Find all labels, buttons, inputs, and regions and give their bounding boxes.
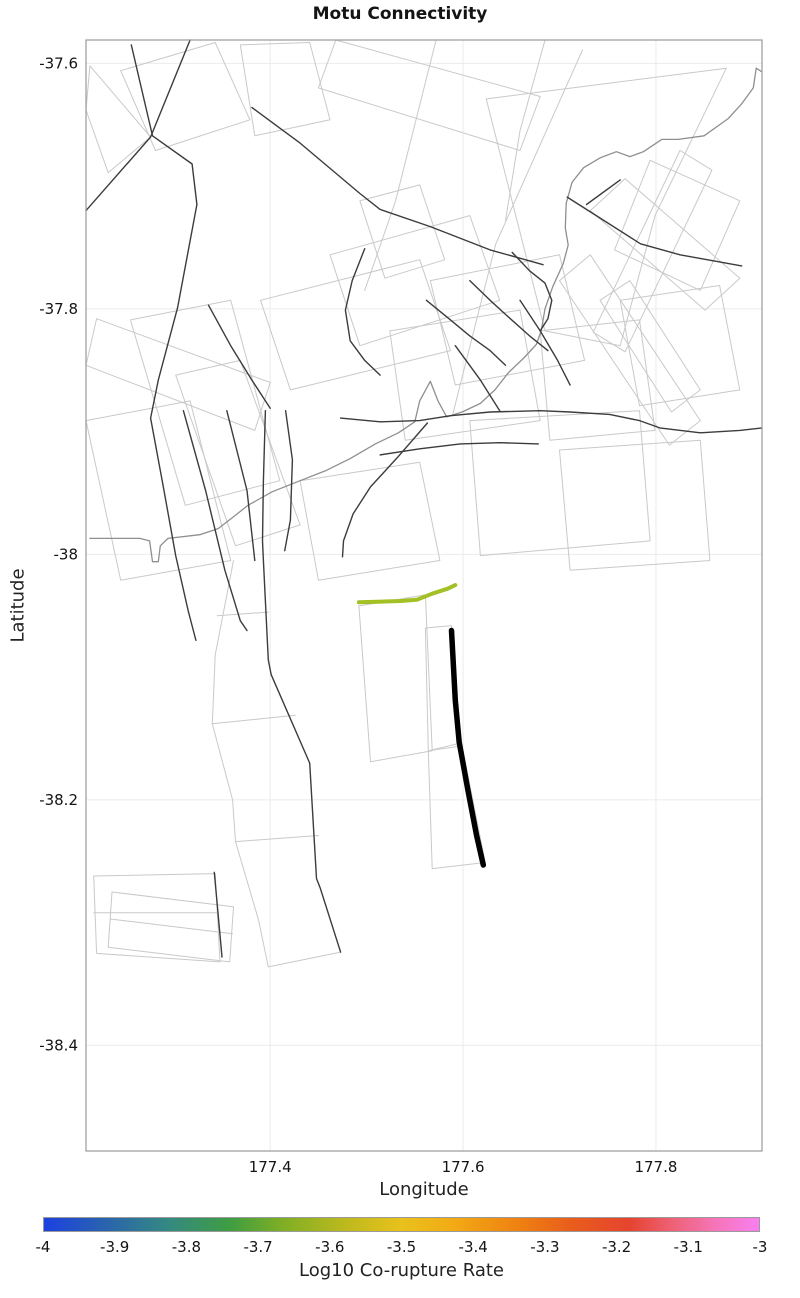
colorbar-tick-label: -3.7 (228, 1238, 288, 1256)
colorbar-tick-label: -3.2 (587, 1238, 647, 1256)
y-axis-label: Latitude (8, 546, 29, 666)
colorbar-tick-label: -3.9 (85, 1238, 145, 1256)
colorbar-tick-label: -3 (730, 1238, 790, 1256)
y-tick-label: -38.4 (39, 1036, 78, 1054)
y-tick-label: -38.2 (39, 791, 78, 809)
colorbar-tick-label: -4 (13, 1238, 73, 1256)
y-tick-label: -37.6 (39, 54, 78, 72)
x-tick-label: 177.4 (249, 1158, 292, 1176)
colorbar-tick-label: -3.1 (658, 1238, 718, 1256)
y-tick-label: -37.8 (39, 300, 78, 318)
x-tick-label: 177.6 (442, 1158, 485, 1176)
colorbar-tick-label: -3.3 (515, 1238, 575, 1256)
colorbar-tick-label: -3.8 (156, 1238, 216, 1256)
colorbar-tick-label: -3.5 (372, 1238, 432, 1256)
figure: Motu Connectivity 177.4177.6177.8-37.6-3… (0, 0, 800, 1298)
x-axis-label: Longitude (86, 1179, 762, 1200)
map-plot: 177.4177.6177.8-37.6-37.8-38-38.2-38.4 (0, 0, 800, 1205)
colorbar-tick-label: -3.6 (300, 1238, 360, 1256)
colorbar-tick-label: -3.4 (443, 1238, 503, 1256)
colorbar (43, 1217, 760, 1232)
x-tick-label: 177.8 (634, 1158, 677, 1176)
colorbar-label: Log10 Co-rupture Rate (43, 1260, 760, 1281)
y-tick-label: -38 (54, 545, 79, 563)
